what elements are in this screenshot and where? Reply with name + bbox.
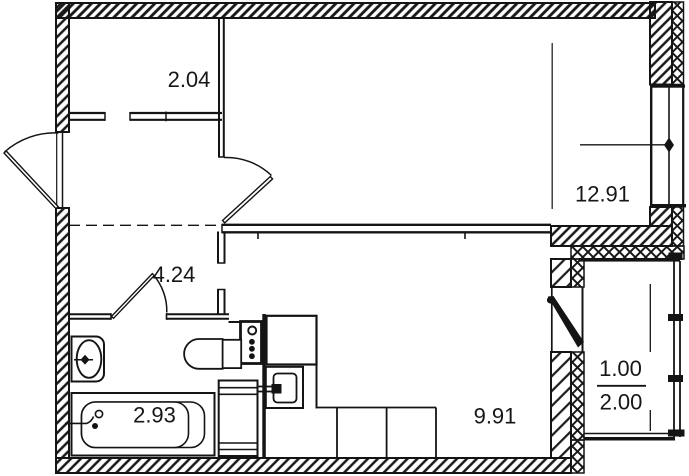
svg-text:2.93: 2.93 xyxy=(133,403,176,428)
svg-text:2.00: 2.00 xyxy=(600,390,643,415)
svg-text:12.91: 12.91 xyxy=(575,182,630,207)
svg-text:1.00: 1.00 xyxy=(599,356,642,381)
svg-text:2.04: 2.04 xyxy=(168,67,211,92)
svg-text:9.91: 9.91 xyxy=(474,403,517,428)
svg-text:4.24: 4.24 xyxy=(153,262,196,287)
